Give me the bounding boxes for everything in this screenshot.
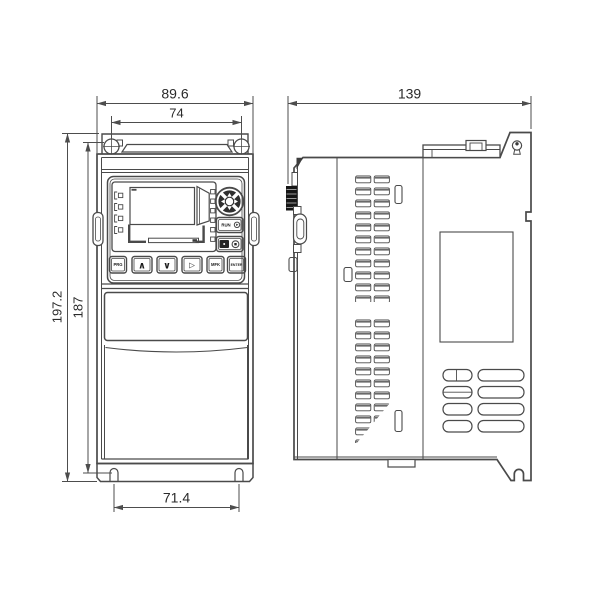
front-top-rail <box>122 145 232 153</box>
base-plate <box>97 464 253 482</box>
drawing-canvas: RUN <box>0 0 600 600</box>
btn-mfk: MFK <box>207 257 224 274</box>
dim-label-depth: 139 <box>398 86 422 102</box>
base-slot-right <box>235 469 243 482</box>
keypad-button-row: PRG ∧ ∨ ▷ <box>110 257 246 274</box>
nav-dial-icon <box>216 188 244 216</box>
side-view <box>286 133 531 481</box>
dim-label-bottom-slots: 71.4 <box>163 490 190 506</box>
stop-button-drawing <box>217 237 244 252</box>
run-button-label: RUN <box>221 223 230 228</box>
side-outline <box>294 133 531 481</box>
lcd-display <box>112 182 216 252</box>
cover-curve <box>106 348 248 353</box>
side-latch-right <box>249 213 259 246</box>
din-mount-tab <box>466 141 486 151</box>
btn-shift: ▷ <box>182 257 202 274</box>
dim-label-overall-width: 89.6 <box>161 86 188 102</box>
lcd-bottom-bar <box>149 238 199 242</box>
vent-slats-upper <box>355 175 390 302</box>
dim-label-mount-height: 187 <box>71 297 86 319</box>
lcd-segment-display <box>197 187 209 226</box>
btn-up-label: ∧ <box>138 260 146 271</box>
lcd-main-screen <box>130 188 195 225</box>
dimension-drawing: RUN <box>0 0 600 600</box>
run-glyph-icon <box>234 222 239 227</box>
mid-cover-frame <box>105 293 248 341</box>
dim-label-overall-height: 197.2 <box>50 291 65 324</box>
dim-front-mount-height: 187 <box>71 143 113 474</box>
stop-glyph-icon <box>220 240 239 248</box>
btn-prg-label: PRG <box>113 262 122 267</box>
btn-shift-label: ▷ <box>189 261 195 270</box>
btn-enter: ENTER <box>228 257 246 274</box>
run-button-drawing: RUN <box>217 218 244 233</box>
btn-down-label: ∨ <box>163 260 171 271</box>
mount-keyhole-left <box>103 139 123 155</box>
lower-cover-walls <box>105 345 248 459</box>
lcd-corner-bracket-left <box>129 225 146 242</box>
din-mount-plate <box>423 141 500 158</box>
btn-up: ∧ <box>132 257 152 274</box>
btn-down: ∨ <box>157 257 177 274</box>
base-slot-left <box>110 469 118 482</box>
lcd-left-indicators <box>115 192 123 234</box>
side-bottom-tab <box>388 460 415 468</box>
side-latch-left <box>93 213 103 246</box>
front-rail-strip <box>292 173 298 187</box>
dim-label-mount-width: 74 <box>169 106 183 121</box>
keypad-panel: RUN <box>108 177 246 284</box>
front-top-band-lines <box>102 170 249 173</box>
btn-mfk-label: MFK <box>211 262 220 267</box>
btn-enter-label: ENTER <box>231 263 243 267</box>
dim-bottom-slot-spacing: 71.4 <box>114 484 239 512</box>
keypad-bottom-lines <box>102 284 249 289</box>
front-view: RUN <box>93 134 259 482</box>
btn-prg: PRG <box>110 257 127 274</box>
lcd-right-indicators <box>211 190 215 242</box>
